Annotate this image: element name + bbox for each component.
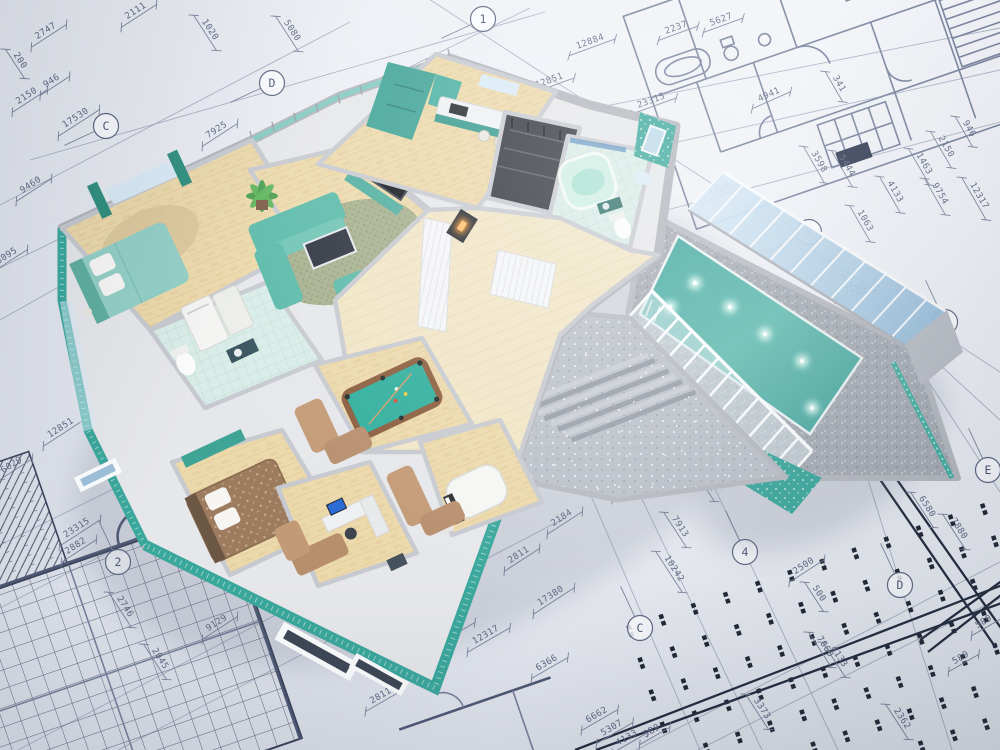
axis-marker-label: D — [269, 76, 276, 90]
blueprint-sheet: 2111274794621501753079259460200102050803… — [0, 0, 1000, 750]
axis-marker-label: C — [103, 119, 110, 133]
blueprint-scene: 2111274794621501753079259460200102050803… — [0, 0, 1000, 750]
plant — [246, 180, 278, 212]
axis-marker-label: 1 — [480, 12, 487, 26]
wardrobe — [418, 218, 452, 332]
bar-stool — [479, 131, 490, 142]
axis-marker-label: C — [637, 621, 644, 635]
nightstand — [84, 308, 92, 316]
axis-marker-label: D — [897, 578, 904, 592]
axis-marker-label: E — [985, 463, 992, 477]
